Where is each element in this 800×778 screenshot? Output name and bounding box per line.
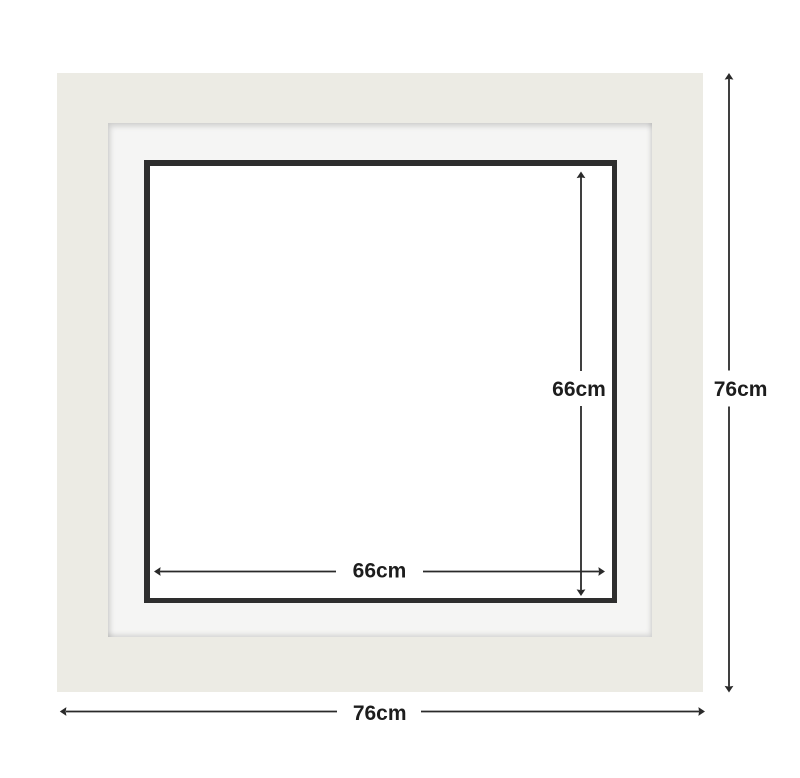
svg-text:76cm: 76cm xyxy=(353,702,407,725)
svg-text:76cm: 76cm xyxy=(714,378,768,401)
svg-text:66cm: 66cm xyxy=(552,378,606,401)
svg-text:66cm: 66cm xyxy=(353,560,407,583)
